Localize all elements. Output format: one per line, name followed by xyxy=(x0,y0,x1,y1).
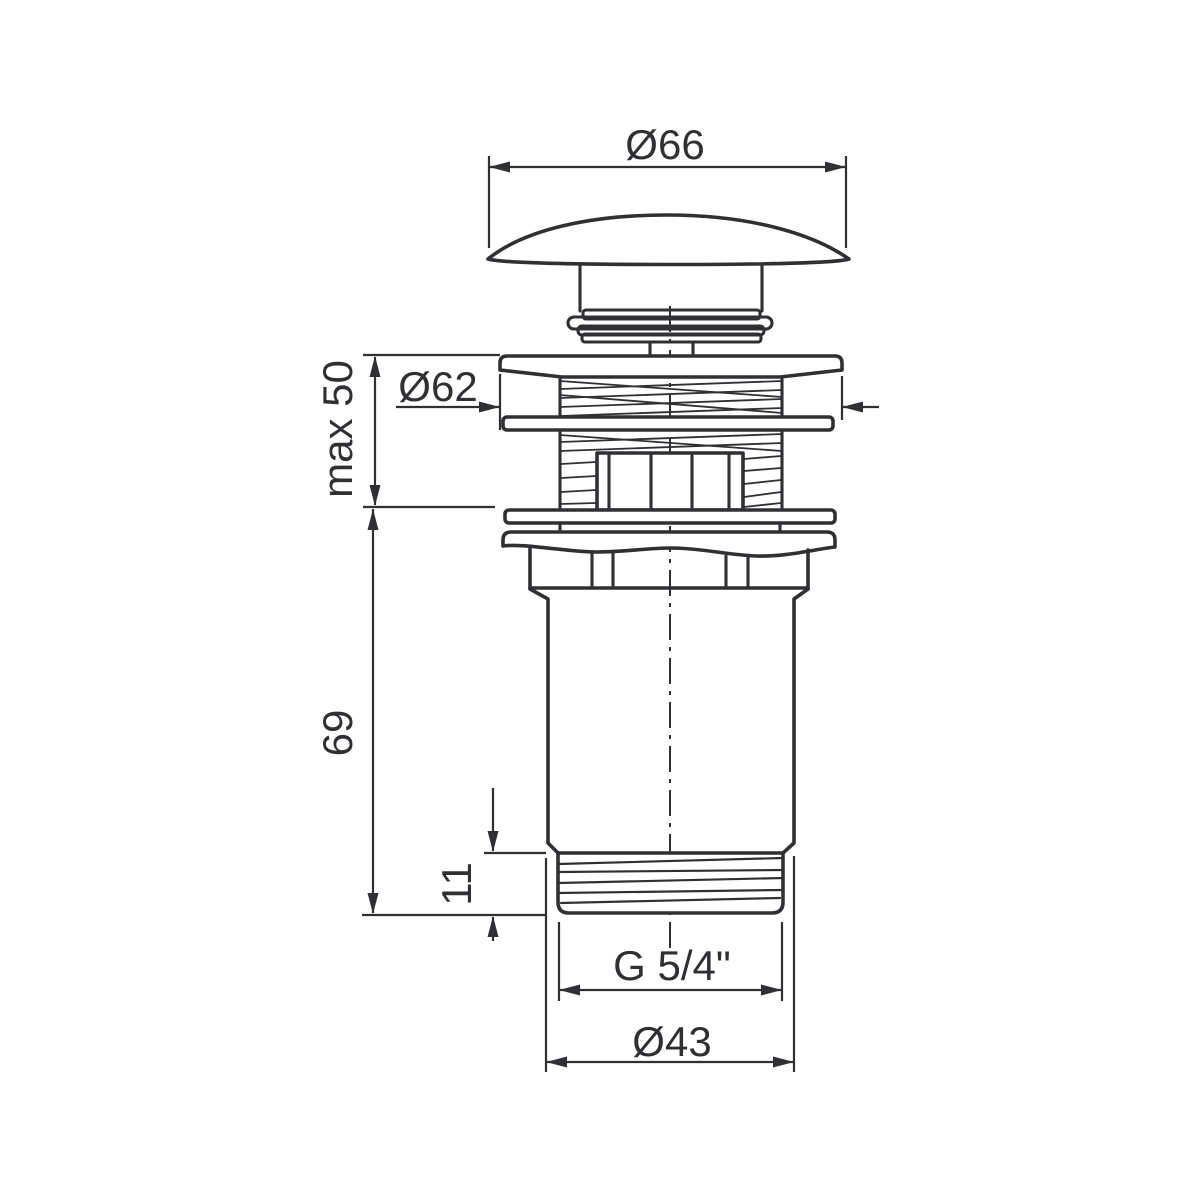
dim-label-thread-length: 11 xyxy=(433,862,480,906)
dim-label-flange-diameter: Ø62 xyxy=(398,363,477,410)
hex-nut-body xyxy=(597,453,743,510)
arrow-left xyxy=(479,402,500,413)
arrow-down xyxy=(368,893,379,914)
neck xyxy=(650,342,693,356)
dim-label-body-length: 69 xyxy=(314,710,361,757)
hex-nut xyxy=(597,453,743,510)
dimension-thread-length: 11 xyxy=(433,788,546,941)
dim-label-clamping-range: max 50 xyxy=(314,360,361,498)
dim-label-cap-diameter: Ø66 xyxy=(625,121,704,168)
arrow-up xyxy=(368,509,379,530)
technical-drawing-canvas: Ø66 Ø62 max 50 69 11 xyxy=(0,0,1200,1200)
lower-washer-plate xyxy=(505,510,835,523)
arrow-left xyxy=(546,1057,567,1068)
arrow-left xyxy=(489,162,510,173)
arrow-right xyxy=(825,162,846,173)
cap-dome-shape xyxy=(488,215,849,265)
cap-stem xyxy=(580,264,762,311)
arrow-down xyxy=(370,485,381,506)
rubber-gasket xyxy=(503,532,835,556)
arrow-left xyxy=(559,985,580,996)
cap-dome xyxy=(488,215,849,265)
main-body-left-edge xyxy=(530,589,558,853)
arrow-right xyxy=(773,1057,794,1068)
upper-washer-plate xyxy=(503,417,833,430)
bottom-thread xyxy=(558,853,783,913)
top-flange xyxy=(500,356,842,377)
arrow-down xyxy=(488,831,499,852)
arrow-right xyxy=(842,402,863,413)
ring-4 xyxy=(582,334,761,342)
arrow-up xyxy=(488,916,499,937)
dim-label-thread-designation: G 5/4" xyxy=(613,942,731,989)
dim-label-outlet-diameter: Ø43 xyxy=(632,1018,711,1065)
main-body-right-edge xyxy=(783,589,808,853)
arrow-right xyxy=(761,985,782,996)
arrow-up xyxy=(370,356,381,377)
